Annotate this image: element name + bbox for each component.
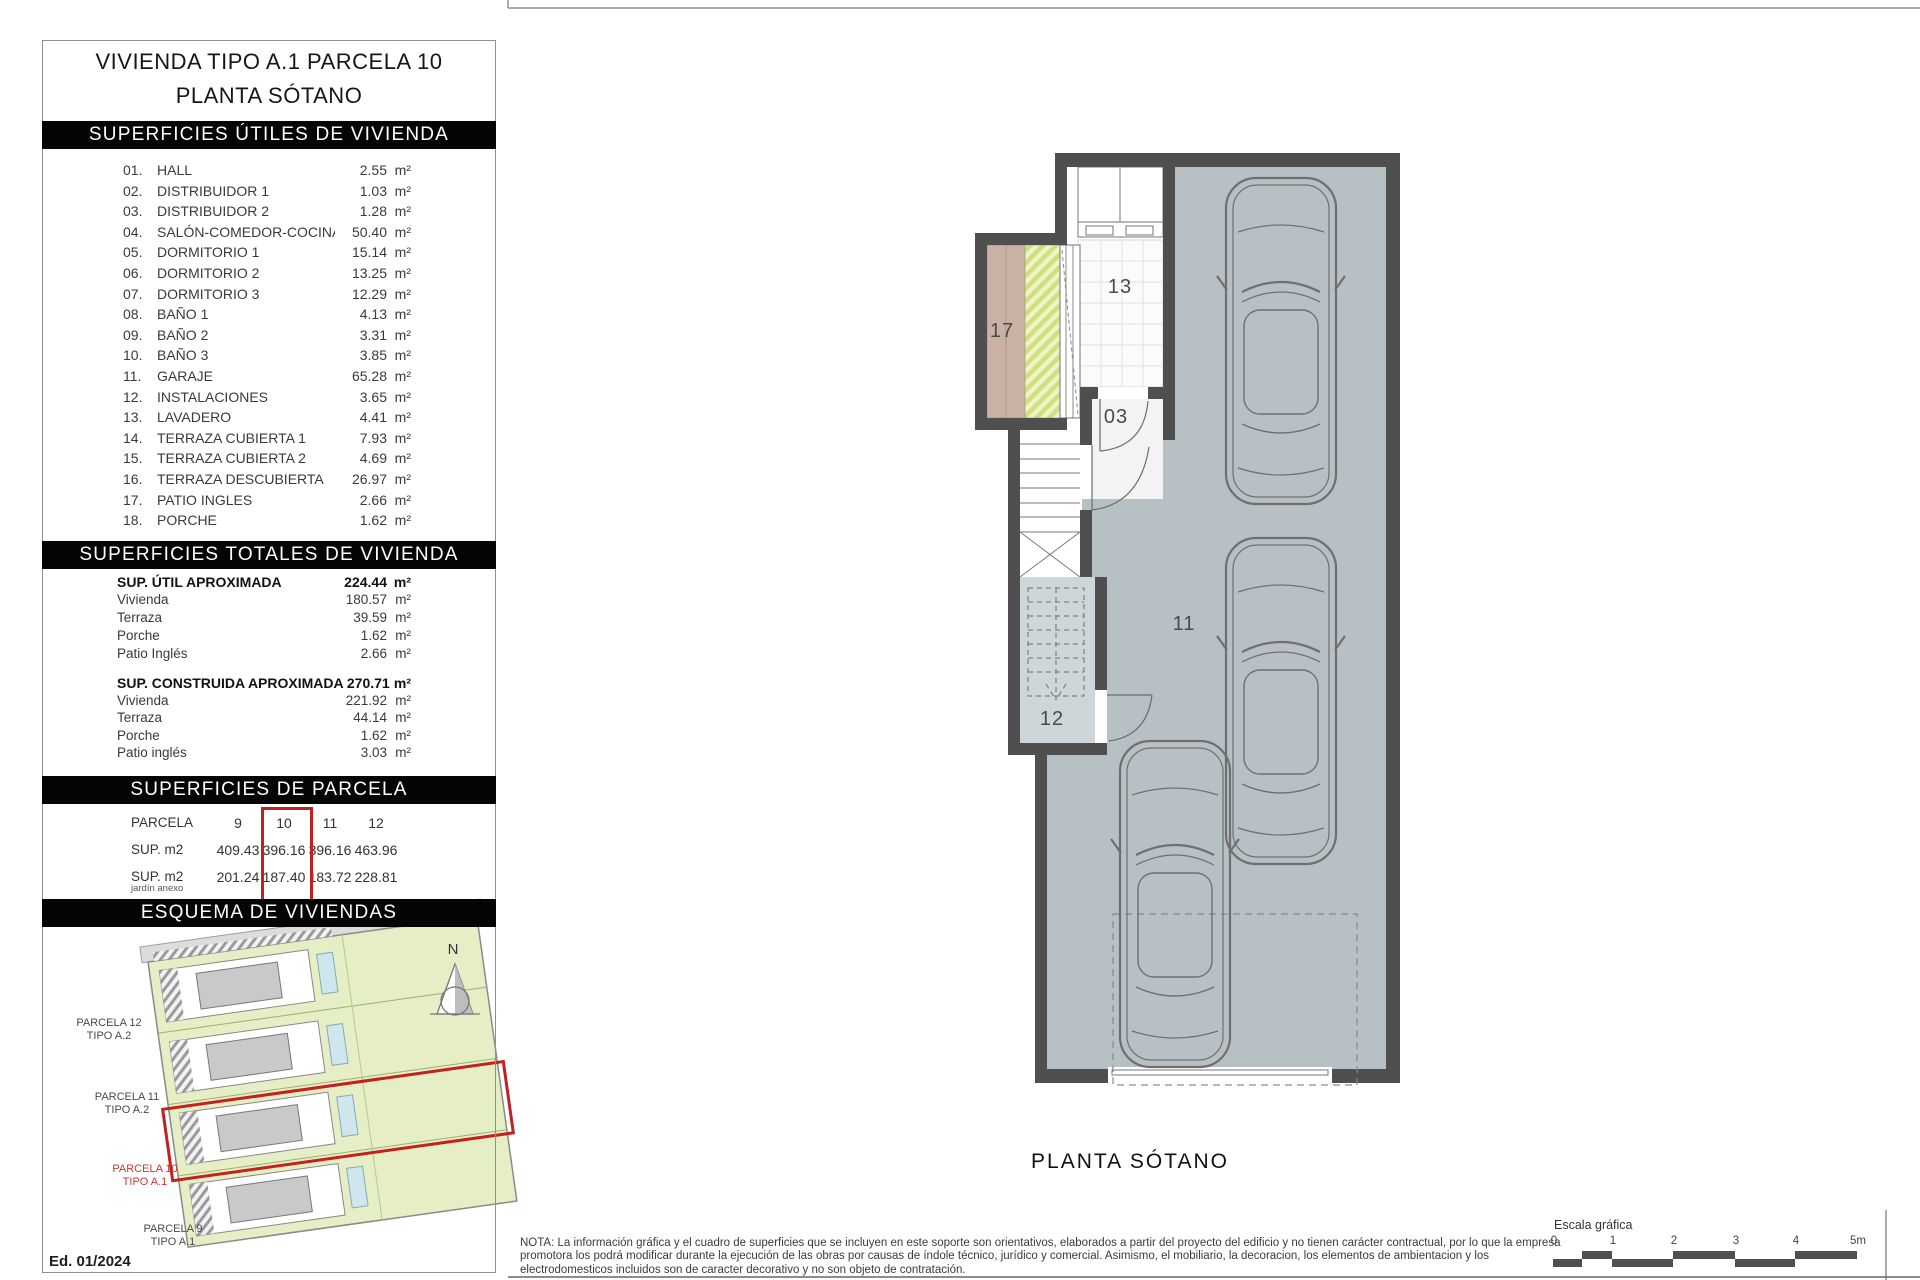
room-num: 01. (123, 162, 153, 178)
scale-tick-2: 2 (1661, 1235, 1687, 1247)
scheme-label-parcela11: PARCELA 11TIPO A.2 (79, 1091, 175, 1117)
room-row: 18.PORCHE1.62m² (123, 512, 411, 528)
room-label-12: 12 (1034, 708, 1070, 731)
unit: m² (387, 162, 411, 178)
room-row: 02.DISTRIBUIDOR 11.03m² (123, 183, 411, 199)
section-heading-parcel: SUPERFICIES DE PARCELA (42, 776, 496, 804)
room-row: 09.BAÑO 23.31m² (123, 327, 411, 343)
total-item: Terraza39.59m² (117, 610, 411, 625)
total-item: Vivienda180.57m² (117, 592, 411, 607)
total-item: Porche1.62m² (117, 628, 411, 643)
total-item: Porche1.62m² (117, 728, 411, 743)
section-heading-totals: SUPERFICIES TOTALES DE VIVIENDA (42, 541, 496, 569)
scale-tick-5: 5m (1845, 1235, 1871, 1247)
room-row: 16.TERRAZA DESCUBIERTA26.97m² (123, 471, 411, 487)
room-row: 03.DISTRIBUIDOR 21.28m² (123, 203, 411, 219)
section-heading-scheme: ESQUEMA DE VIVIENDAS (42, 899, 496, 927)
edition-label: Ed. 01/2024 (49, 1253, 131, 1270)
total-item: Patio Inglés2.66m² (117, 646, 411, 661)
room-name: HALL (153, 162, 335, 178)
stairs (1020, 444, 1080, 577)
room-row: 13.LAVADERO4.41m² (123, 409, 411, 425)
total-built-header: SUP. CONSTRUIDA APROXIMADA270.71m² (117, 675, 411, 691)
garage-gate (1108, 1067, 1332, 1085)
plan-sheet: VIVIENDA TIPO A.1 PARCELA 10 PLANTA SÓTA… (0, 0, 1920, 1280)
room-row: 07.DORMITORIO 312.29m² (123, 286, 411, 302)
scheme-label-parcela9: PARCELA 9TIPO A.1 (125, 1223, 221, 1249)
total-item: Patio inglés3.03m² (117, 745, 411, 760)
parcel-garden-sublabel: jardín anexo (131, 883, 183, 894)
room-label-17: 17 (984, 320, 1020, 343)
scheme-label-parcela12: PARCELA 12TIPO A.2 (61, 1017, 157, 1043)
total-item: Terraza44.14m² (117, 710, 411, 725)
room-row: 10.BAÑO 33.85m² (123, 347, 411, 363)
window (1060, 245, 1080, 418)
closet (1078, 167, 1163, 237)
room-label-03: 03 (1098, 406, 1134, 429)
room-area: 2.55 (335, 162, 387, 178)
room-row: 06.DORMITORIO 213.25m² (123, 265, 411, 281)
left-info-panel: VIVIENDA TIPO A.1 PARCELA 10 PLANTA SÓTA… (42, 40, 496, 1273)
page-title-line2: PLANTA SÓTANO (43, 83, 495, 109)
room-row: 05.DORMITORIO 115.14m² (123, 244, 411, 260)
room-row: 15.TERRAZA CUBIERTA 24.69m² (123, 450, 411, 466)
room-13-lavadero (1078, 240, 1163, 387)
total-item: Vivienda221.92m² (117, 693, 411, 708)
room-row: 01.HALL2.55m² (123, 162, 411, 178)
scale-label: Escala gráfica (1554, 1218, 1633, 1232)
room-row: 08.BAÑO 14.13m² (123, 306, 411, 322)
section-heading-useful: SUPERFICIES ÚTILES DE VIVIENDA (42, 121, 496, 149)
plan-caption: PLANTA SÓTANO (980, 1150, 1280, 1174)
scale-tick-4: 4 (1783, 1235, 1809, 1247)
highlighted-parcel-box (261, 807, 313, 905)
door-opening-13-03 (1098, 387, 1148, 399)
footer-note: NOTA: La información gráfica y el cuadro… (520, 1237, 1575, 1277)
total-useful-header: SUP. ÚTIL APROXIMADA224.44m² (117, 574, 411, 590)
room-label-13: 13 (1102, 276, 1138, 299)
scale-tick-1: 1 (1600, 1235, 1626, 1247)
north-label: N (441, 941, 465, 958)
room-label-11: 11 (1166, 613, 1202, 636)
page-title-line1: VIVIENDA TIPO A.1 PARCELA 10 (43, 49, 495, 75)
room-row: 12.INSTALACIONES3.65m² (123, 389, 411, 405)
scale-tick-3: 3 (1723, 1235, 1749, 1247)
room-row: 17.PATIO INGLES2.66m² (123, 492, 411, 508)
room-row: 11.GARAJE65.28m² (123, 368, 411, 384)
scale-tick-0: 0 (1541, 1235, 1567, 1247)
scale-bar (1553, 1251, 1857, 1267)
room-row: 14.TERRAZA CUBIERTA 17.93m² (123, 430, 411, 446)
room-row: 04.SALÓN-COMEDOR-COCINA50.40m² (123, 224, 411, 240)
scheme-label-parcela10: PARCELA 10TIPO A.1 (97, 1163, 193, 1189)
